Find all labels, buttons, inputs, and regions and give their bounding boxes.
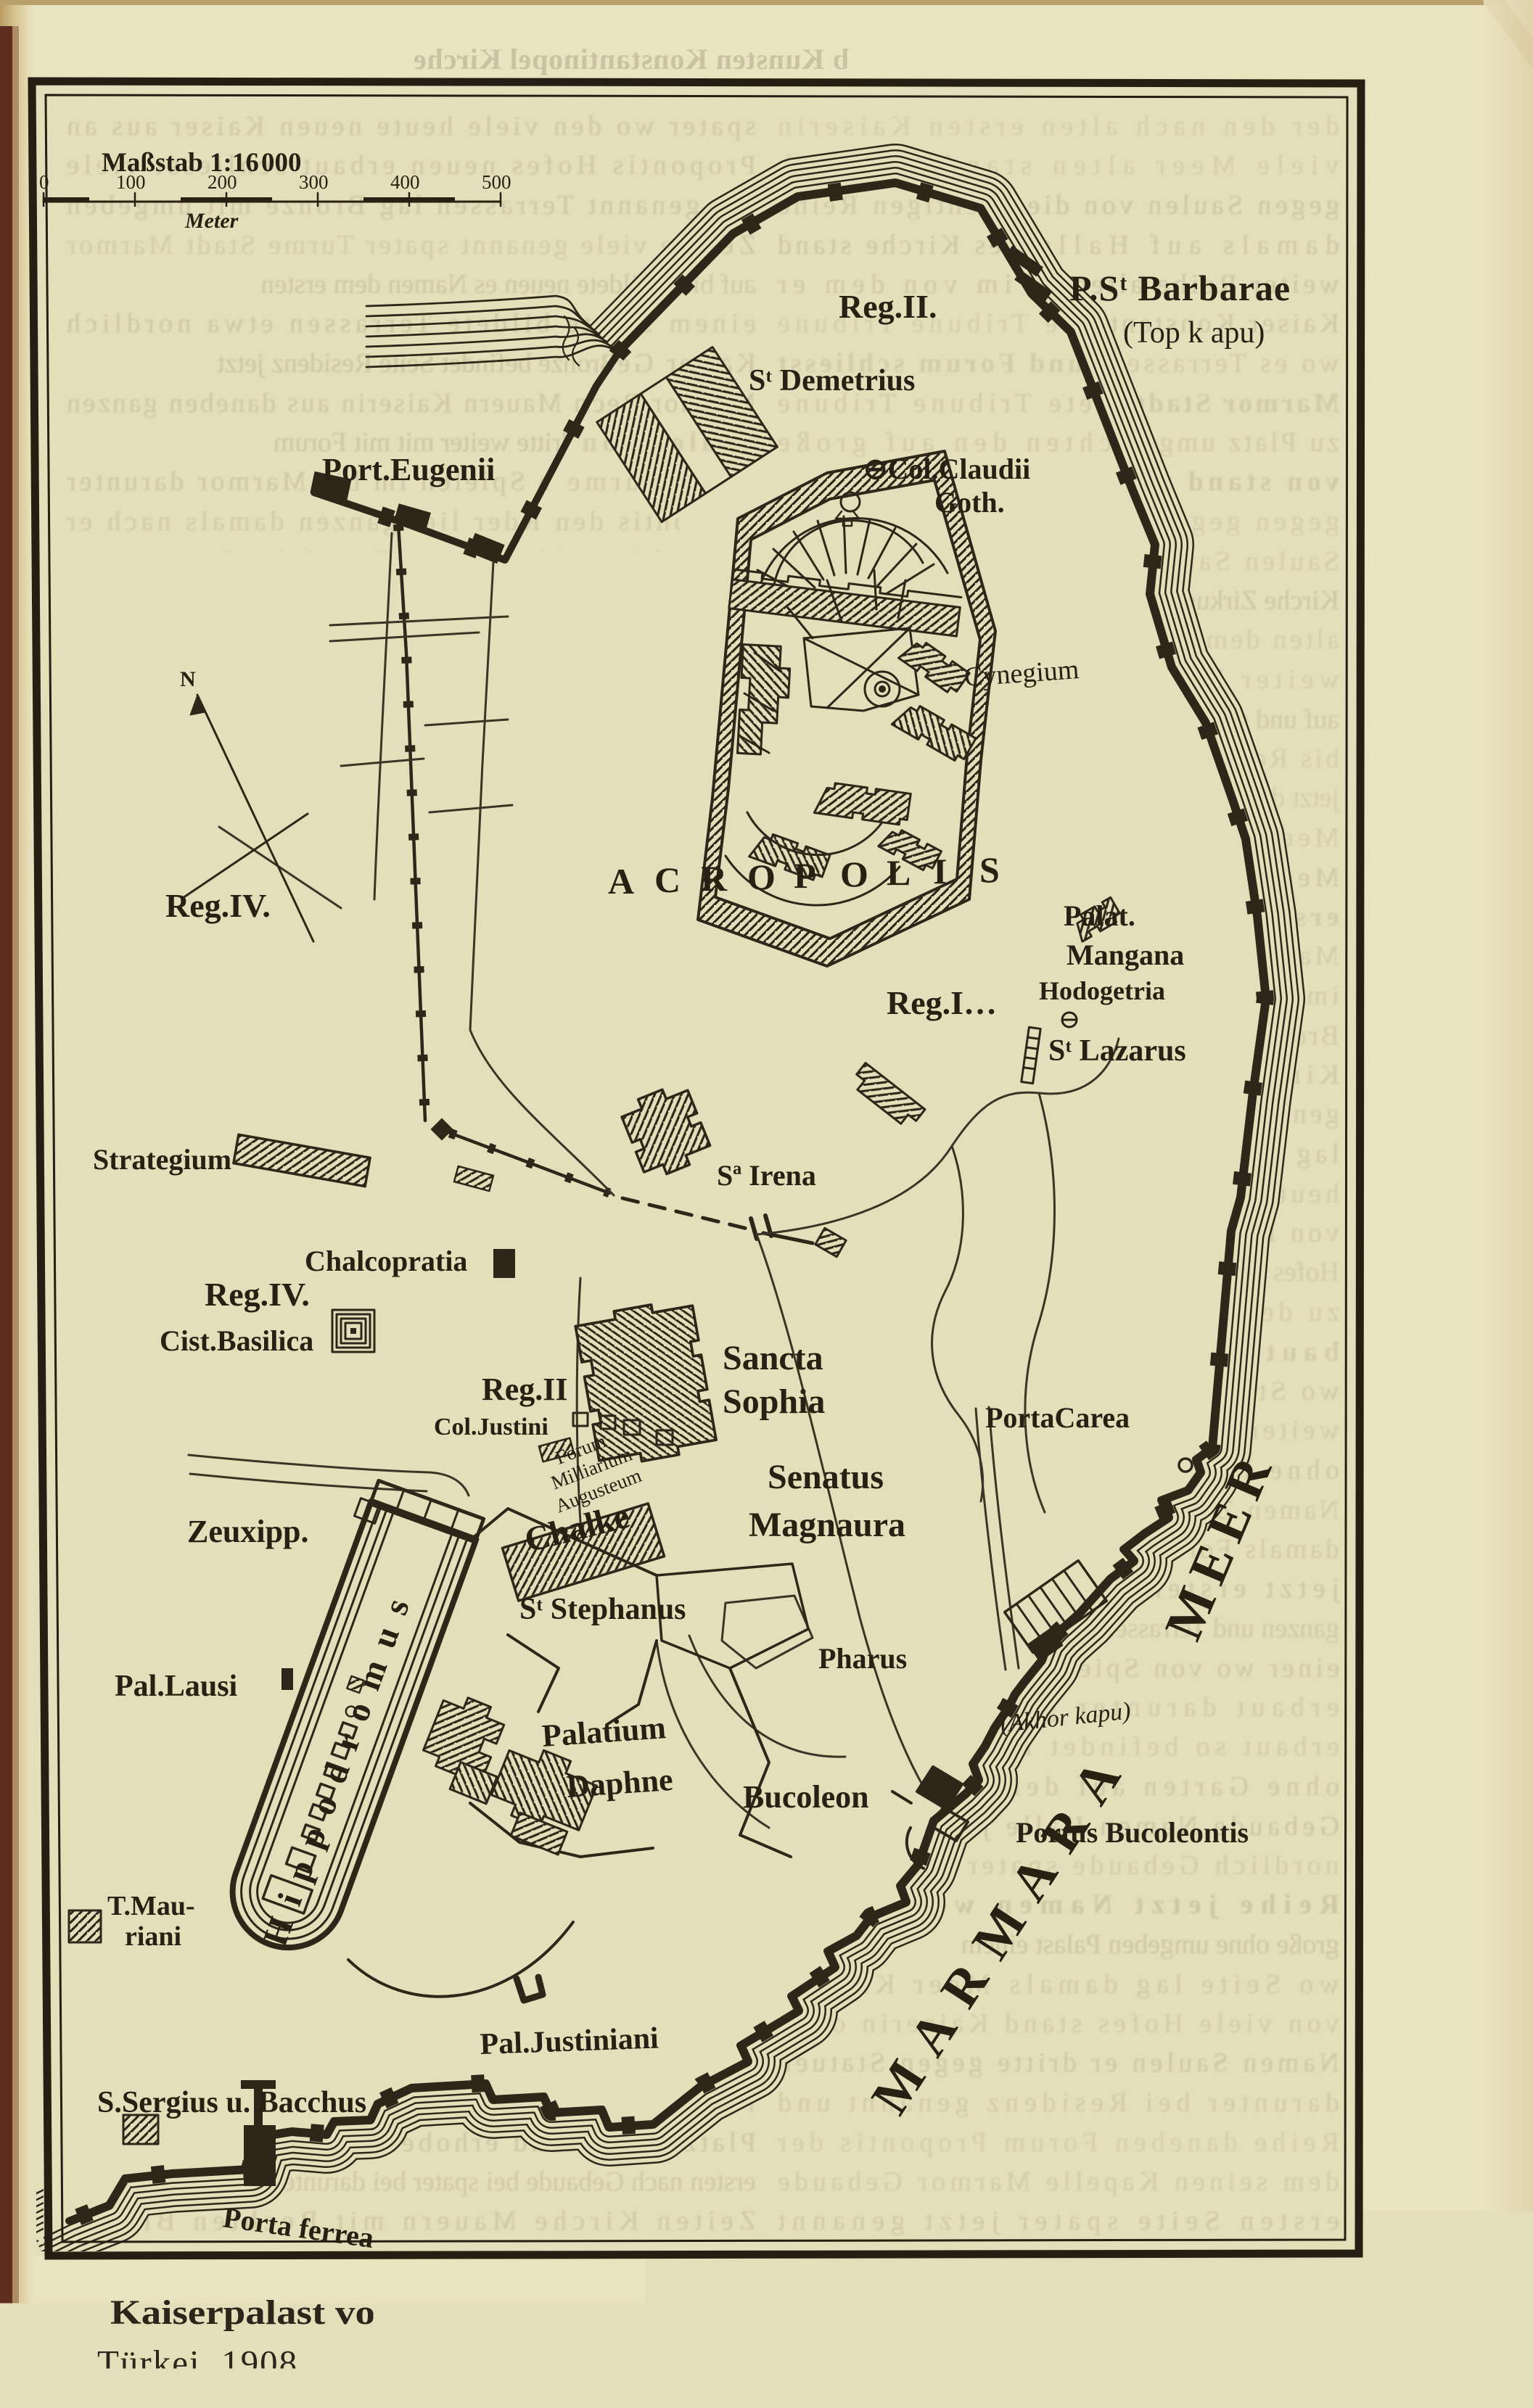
- svg-text:Cist.Basilica: Cist.Basilica: [160, 1324, 313, 1357]
- svg-text:A: A: [608, 861, 634, 902]
- svg-text:I: I: [933, 851, 947, 891]
- svg-text:Senatus: Senatus: [768, 1458, 884, 1496]
- svg-text:Strategium: Strategium: [93, 1143, 231, 1176]
- svg-text:Reihe daneben Forum Propontis: Reihe daneben Forum Propontis der: [778, 2127, 1339, 2158]
- svg-text:Palat.: Palat.: [1064, 899, 1135, 932]
- svg-text:Antikvárium.hu: Antikvárium.hu: [4, 2380, 129, 2402]
- svg-text:O: O: [747, 857, 776, 897]
- svg-text:200: 200: [207, 171, 237, 193]
- svg-text:R: R: [701, 858, 728, 899]
- svg-text:Reg.II: Reg.II: [482, 1372, 568, 1407]
- svg-text:Sancta: Sancta: [723, 1339, 823, 1377]
- svg-text:Col.Justini: Col.Justini: [434, 1414, 548, 1440]
- svg-text:Sᵗ Demetrius: Sᵗ Demetrius: [749, 364, 915, 397]
- svg-text:Pal.Justiniani: Pal.Justiniani: [480, 2021, 659, 2061]
- svg-text:O: O: [840, 854, 868, 894]
- svg-text:Sᵗ Stephanus: Sᵗ Stephanus: [519, 1593, 686, 1626]
- svg-text:14: 14: [1123, 2340, 1154, 2373]
- svg-text:Turme mit neuen aus ersten Pla: Turme mit neuen aus ersten Platz Hallen …: [67, 585, 756, 616]
- svg-text:Mangana: Mangana: [1066, 939, 1184, 971]
- svg-text:S: S: [979, 849, 1000, 890]
- svg-text:seinen Kaiserin von große Klos: seinen Kaiserin von große Kloster Hallen…: [67, 1850, 756, 1881]
- svg-text:500: 500: [482, 171, 511, 193]
- svg-text:riani: riani: [125, 1921, 181, 1952]
- svg-text:Jahrhundert etwa bildete Halle: Jahrhundert etwa bildete Hallen erbaut K…: [250, 822, 756, 853]
- svg-text:Reg.IV.: Reg.IV.: [205, 1276, 310, 1313]
- svg-text:Bucoleon: Bucoleon: [743, 1779, 869, 1815]
- svg-text:Reg.II.: Reg.II.: [839, 288, 937, 325]
- svg-text:nach das Platz Hallen Marmor P: nach das Platz Hallen Marmor Propontis e…: [67, 1969, 756, 2000]
- svg-text:Sª Irena: Sª Irena: [717, 1159, 816, 1192]
- svg-text:Zeuxipp.: Zeuxipp.: [187, 1514, 309, 1549]
- svg-text:Magnaura: Magnaura: [749, 1506, 905, 1544]
- svg-text:Sᵗ Lazarus: Sᵗ Lazarus: [1048, 1034, 1186, 1068]
- svg-text:Namen Saulen er dritte gegen S: Namen Saulen er dritte gegen Statuen: [778, 2048, 1339, 2078]
- svg-text:100: 100: [116, 171, 146, 193]
- svg-text:Hodogetria: Hodogetria: [1039, 976, 1165, 1005]
- svg-text:Reg.I…: Reg.I…: [887, 984, 997, 1021]
- svg-text:400: 400: [390, 171, 420, 193]
- svg-text:ersten nach Gebaude bei spater: ersten nach Gebaude bei spater bei darun…: [274, 2166, 756, 2197]
- svg-text:Kaiserpalast von Konstantinope: Kaiserpalast von Konstantinopel im Mitte…: [110, 2293, 1290, 2332]
- svg-text:Daphne: Daphne: [565, 1762, 674, 1805]
- svg-text:(Top k apu): (Top k apu): [1123, 316, 1265, 350]
- svg-text:L: L: [887, 852, 911, 893]
- svg-text:b Kunsten Konstantinopel Kirch: b Kunsten Konstantinopel Kirche: [414, 43, 849, 75]
- svg-text:bis Teile dem wurde Saulen Klo: bis Teile dem wurde Saulen Kloster an da…: [67, 1811, 756, 1842]
- svg-text:S.Sergius u. Bacchus: S.Sergius u. Bacchus: [97, 2086, 366, 2119]
- svg-text:N: N: [180, 667, 196, 691]
- svg-text:prachtigen an etwa Spielen Mee: prachtigen an etwa Spielen Meer Terrasse…: [281, 941, 756, 971]
- svg-text:Chalcopratia: Chalcopratia: [305, 1245, 467, 1277]
- svg-text:Türkei. 1908.: Türkei. 1908.: [97, 2343, 308, 2383]
- svg-text:Meter: Meter: [184, 209, 239, 233]
- svg-text:PortaCarea: PortaCarea: [985, 1401, 1130, 1434]
- svg-text:Reg.IV.: Reg.IV.: [165, 887, 271, 924]
- svg-text:P: P: [794, 855, 816, 896]
- svg-text:darunter Zeiten Halle sich Mee: darunter Zeiten Halle sich Meer Mauern G…: [229, 743, 756, 774]
- svg-text:C: C: [654, 859, 681, 900]
- svg-text:Pal.Lausi: Pal.Lausi: [115, 1670, 238, 1703]
- svg-text:T.Mau-: T.Mau-: [107, 1891, 195, 1921]
- svg-text:⊖Col.Claudii: ⊖Col.Claudii: [863, 453, 1030, 485]
- svg-text:Port.Eugenii: Port.Eugenii: [322, 452, 495, 487]
- svg-text:300: 300: [299, 171, 329, 193]
- svg-text:Goth.: Goth.: [934, 486, 1005, 519]
- svg-text:Pharus: Pharus: [818, 1642, 907, 1675]
- svg-text:P.Sᵗ Barbarae: P.Sᵗ Barbarae: [1069, 268, 1291, 308]
- svg-text:Bronze viele genannt spater Tu: Bronze viele genannt spater Turme Stadt …: [67, 230, 756, 260]
- svg-text:Sophia: Sophia: [723, 1382, 825, 1421]
- svg-text:neuen von etwa lag genannt und: neuen von etwa lag genannt und stand umg…: [227, 981, 756, 1011]
- svg-text:große seinen erbaut Kaiserin a: große seinen erbaut Kaiserin an Mauern o…: [254, 1020, 756, 1051]
- svg-text:schliesst Namen etwa Propontis: schliesst Namen etwa Propontis Hofes Pal…: [67, 704, 756, 735]
- svg-text:die Konstantin daneben prachti: die Konstantin daneben prachtigen er Kai…: [67, 1218, 756, 1248]
